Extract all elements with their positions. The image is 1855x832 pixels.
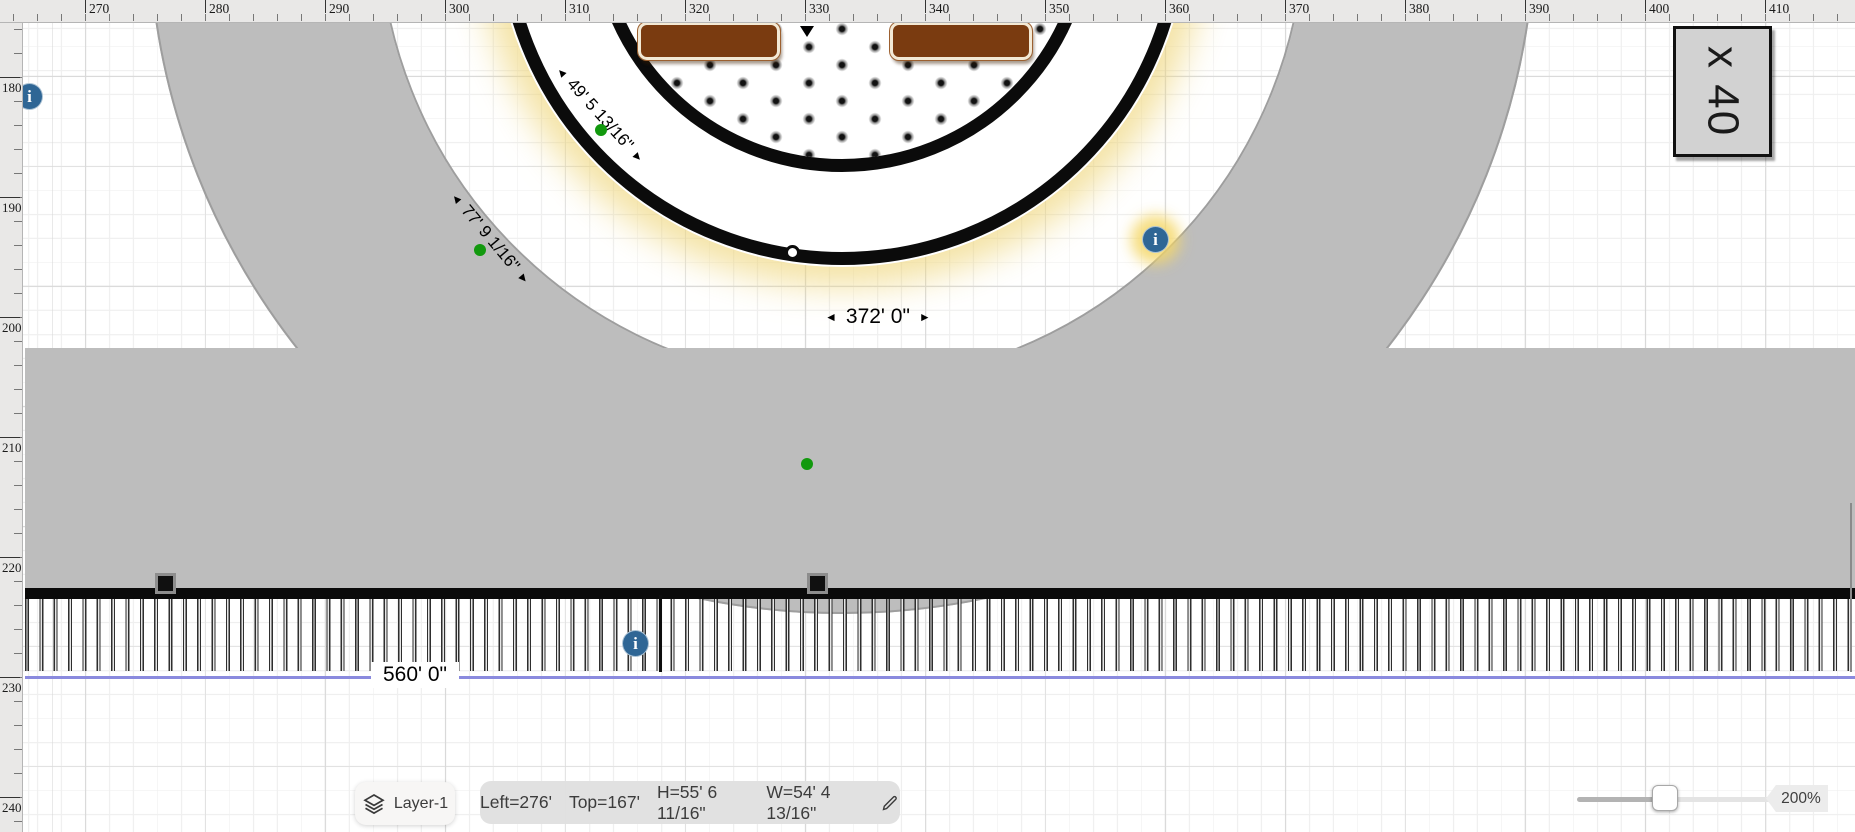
ruler-tick [0,317,20,318]
ruler-tick: 210 [2,440,22,456]
ruler-tick: 290 [329,1,349,17]
ruler-tick [805,14,806,21]
design-canvas[interactable]: 560' 0" ◄ 49' 5 13/16" ► ◄ 77' 9 1/16" ►… [22,22,1855,832]
ruler-tick: 380 [1409,1,1429,17]
ruler-tick [14,701,22,702]
ruler-tick [14,245,22,246]
vertex-dot-green[interactable] [801,458,813,470]
ruler-tick: 320 [689,1,709,17]
ruler-tick [14,485,22,486]
ruler-tick [637,14,638,21]
ruler-tick [1141,14,1142,21]
hatch-divider-line [659,595,662,672]
ruler-tick [1645,0,1646,13]
ruler-tick: 270 [89,1,109,17]
ruler-tick: 340 [929,1,949,17]
ruler-tick [205,14,206,21]
layer-button-label: Layer-1 [394,795,448,813]
floor-band[interactable] [25,348,1855,588]
dim-end-arrow-icon: ► [919,311,931,323]
ruler-tick [1621,14,1622,21]
ruler-tick [14,221,22,222]
dimension-line-560[interactable] [25,676,1855,679]
ruler-tick [1405,0,1406,13]
ruler-tick [157,14,158,21]
ruler-tick: 390 [1529,1,1549,17]
ruler-tick: 350 [1049,1,1069,17]
ruler-tick [1573,14,1574,21]
ruler-tick [14,509,22,510]
selection-top-value: Top=167' [569,792,640,813]
ruler-tick [445,14,446,21]
ruler-tick [1813,14,1814,21]
ruler-tick [733,14,734,21]
selection-dimensions-bar: Left=276' Top=167' H=55' 6 11/16" W=54' … [480,781,900,824]
ruler-tick [14,749,22,750]
ruler-tick: 220 [2,560,22,576]
right-boundary-line [1850,503,1852,672]
ruler-tick [13,14,14,21]
ruler-tick [1285,0,1286,13]
ruler-tick [133,14,134,21]
ruler-tick: 330 [809,1,829,17]
ruler-vertical: 180190200210220230240 [0,0,23,832]
ruler-tick [14,461,22,462]
ruler-tick [14,53,22,54]
ruler-tick [853,14,854,21]
ruler-tick [493,14,494,21]
ruler-tick [1525,0,1526,13]
vertex-dot-green[interactable] [595,124,607,136]
ruler-tick [37,14,38,21]
ruler-tick [1117,14,1118,21]
ruler-tick [205,0,206,13]
ruler-tick: 190 [2,200,22,216]
ruler-tick: 360 [1169,1,1189,17]
ruler-tick [14,533,22,534]
dim-start-arrow-icon: ◄ [825,311,837,323]
ruler-tick [14,149,22,150]
ruler-tick [685,0,686,13]
ring-node-marker[interactable] [785,245,800,260]
ruler-tick [1837,14,1838,21]
table-left[interactable] [638,22,780,60]
ruler-tick [565,14,566,21]
info-icon[interactable]: i [1142,226,1169,253]
ruler-tick [1765,0,1766,13]
ruler-horizontal: 2702802903003103203303403503603703803904… [0,0,1855,23]
ruler-tick [14,653,22,654]
ruler-tick [373,14,374,21]
ruler-tick [565,0,566,13]
ruler-tick [1405,14,1406,21]
ruler-tick [14,125,22,126]
layers-icon [362,792,386,816]
ruler-tick [253,14,254,21]
ruler-tick [0,77,20,78]
ruler-tick [445,0,446,13]
selection-handle-left[interactable] [155,573,176,594]
ruler-tick [613,14,614,21]
ruler-tick: 240 [2,800,22,816]
ruler-tick [1381,14,1382,21]
ruler-tick [421,14,422,21]
ruler-tick: 310 [569,1,589,17]
ruler-tick [0,197,20,198]
info-icon[interactable]: i [22,83,43,110]
info-icon[interactable]: i [622,630,649,657]
ruler-tick [1765,14,1766,21]
dimension-372[interactable]: ◄ 372' 0" ► [825,305,931,329]
ruler-tick [805,0,806,13]
selection-width-value: W=54' 4 13/16" [766,782,863,824]
ruler-tick [1717,14,1718,21]
multiplier-label: x 40 [1698,46,1748,137]
ruler-tick [14,629,22,630]
table-right[interactable] [890,22,1032,60]
ruler-tick [1453,14,1454,21]
ruler-tick [14,29,22,30]
floorplan-app: 560' 0" ◄ 49' 5 13/16" ► ◄ 77' 9 1/16" ►… [0,0,1855,832]
ruler-tick: 180 [2,80,22,96]
ruler-tick [1645,14,1646,21]
ruler-tick [757,14,758,21]
ruler-tick [0,437,20,438]
selection-left-value: Left=276' [480,792,552,813]
vertex-dot-green[interactable] [474,244,486,256]
ruler-tick [14,821,22,822]
ruler-tick [1693,14,1694,21]
ruler-tick [397,14,398,21]
ruler-tick [661,14,662,21]
ruler-tick [0,557,20,558]
ruler-tick [685,14,686,21]
ruler-tick [1501,14,1502,21]
ruler-tick: 410 [1769,1,1789,17]
ruler-tick [541,14,542,21]
ruler-tick [1741,14,1742,21]
ruler-tick [1357,14,1358,21]
ruler-tick [901,14,902,21]
ruler-tick [1525,14,1526,21]
dimension-372-label: 372' 0" [846,305,910,329]
ruler-tick [1477,14,1478,21]
multiplier-box[interactable]: x 40 [1673,26,1772,157]
hatch-seating-band[interactable] [25,599,1855,671]
ruler-tick [14,389,22,390]
ruler-tick: 400 [1649,1,1669,17]
ruler-tick [781,14,782,21]
ruler-tick [1045,14,1046,21]
ruler-tick [1165,14,1166,21]
ruler-tick: 370 [1289,1,1309,17]
selection-height-value: H=55' 6 11/16" [657,782,749,824]
edit-pencil-icon[interactable] [880,793,900,813]
ruler-tick [14,173,22,174]
ruler-tick [85,14,86,21]
ruler-tick [181,14,182,21]
layer-button[interactable]: Layer-1 [355,782,455,825]
ruler-tick [325,14,326,21]
ruler-tick [277,14,278,21]
ruler-tick [925,14,926,21]
ruler-tick [14,581,22,582]
ruler-tick [14,269,22,270]
ruler-tick [1165,0,1166,13]
ruler-tick [925,0,926,13]
ruler-tick [1261,14,1262,21]
ruler-tick [1333,14,1334,21]
ruler-tick [14,605,22,606]
ruler-tick [1213,14,1214,21]
ruler-tick: 200 [2,320,22,336]
ruler-tick [14,773,22,774]
ruler-tick [14,293,22,294]
ruler-tick: 230 [2,680,22,696]
ruler-tick [14,413,22,414]
ruler-tick [1597,14,1598,21]
ruler-tick [1285,14,1286,21]
ruler-tick [877,14,878,21]
ruler-tick [301,14,302,21]
ruler-tick: 300 [449,1,469,17]
dimension-label-560[interactable]: 560' 0" [371,662,459,688]
ruler-tick [325,0,326,13]
zoom-level-badge: 200% [1766,785,1828,812]
ruler-tick [1237,14,1238,21]
ruler-tick [517,14,518,21]
ruler-tick [997,14,998,21]
ruler-tick [14,101,22,102]
ruler-tick [14,725,22,726]
ruler-tick [973,14,974,21]
ruler-tick [0,677,20,678]
ruler-tick [0,797,20,798]
ruler-tick [14,341,22,342]
ruler-tick [85,0,86,13]
ruler-tick [1093,14,1094,21]
wall-line[interactable] [25,588,1855,599]
ruler-tick [1021,14,1022,21]
ruler-tick [1045,0,1046,13]
zoom-slider-thumb[interactable] [1652,785,1678,811]
ruler-tick [61,14,62,21]
ruler-tick [14,365,22,366]
center-mark-arrow-icon [800,26,814,37]
ruler-tick: 280 [209,1,229,17]
selection-handle-right[interactable] [807,573,828,594]
